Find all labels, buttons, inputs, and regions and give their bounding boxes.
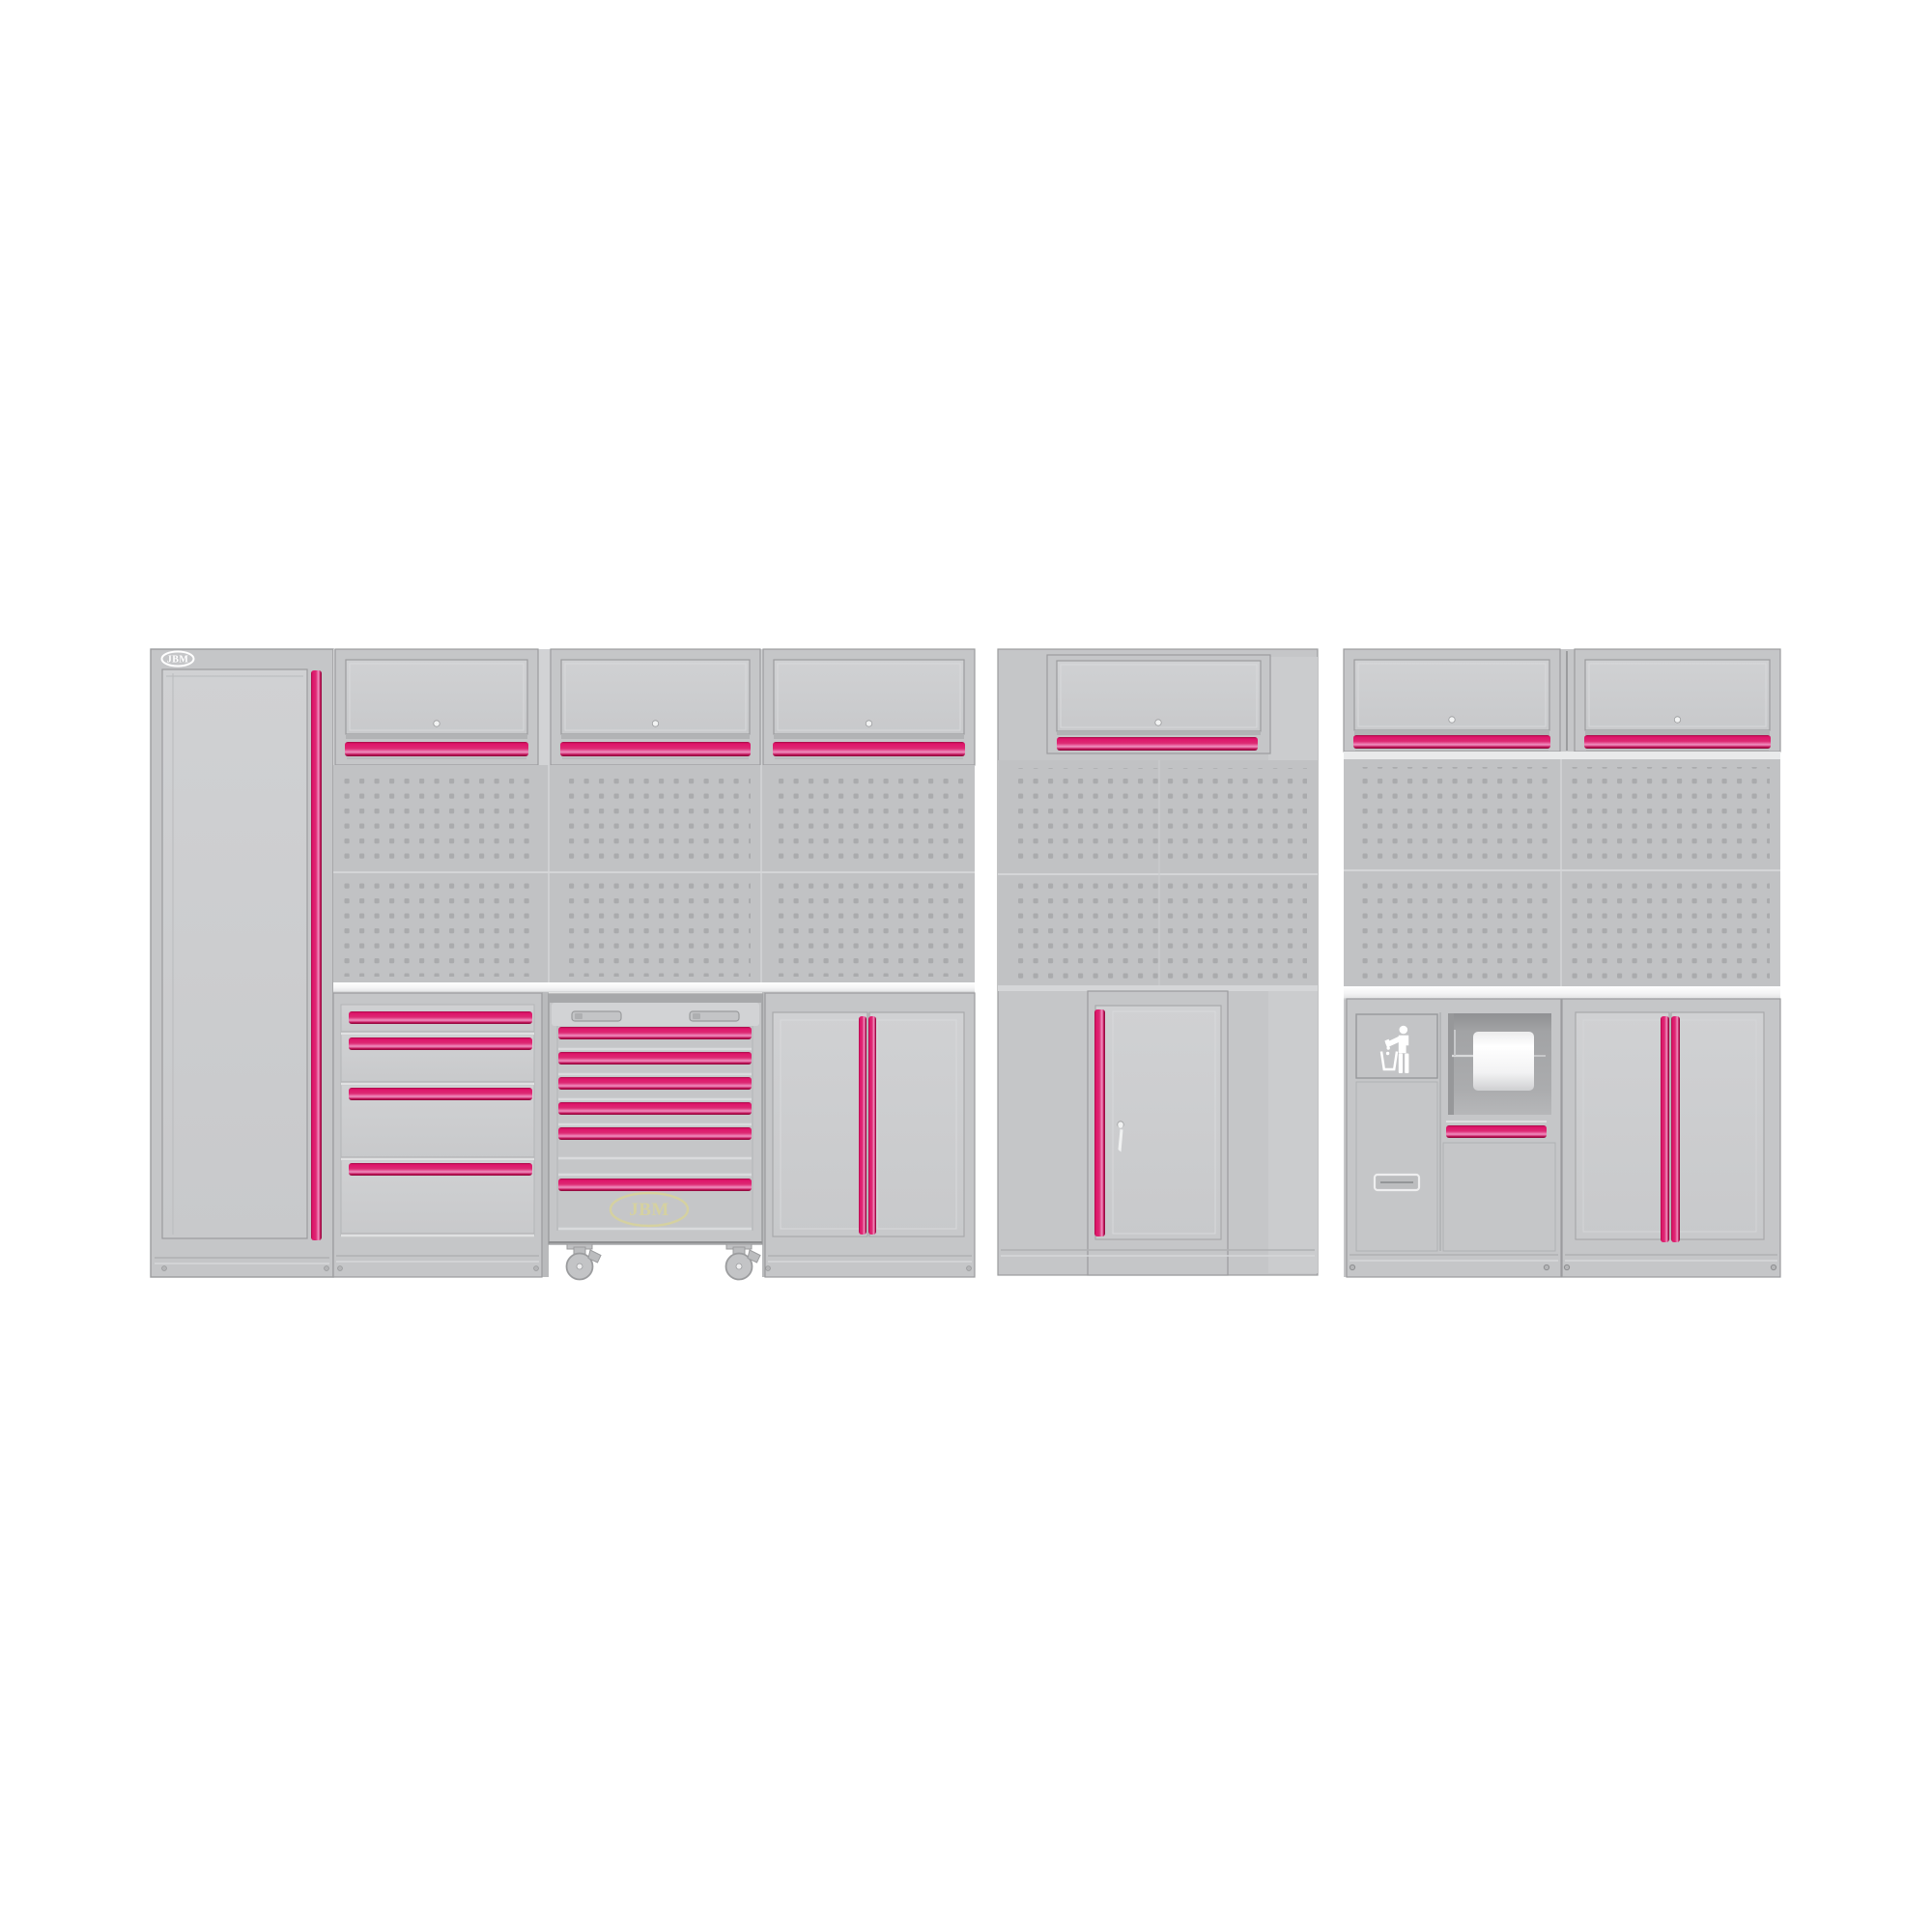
svg-text:JBM: JBM xyxy=(629,1200,669,1220)
svg-text:JBM: JBM xyxy=(167,655,189,666)
